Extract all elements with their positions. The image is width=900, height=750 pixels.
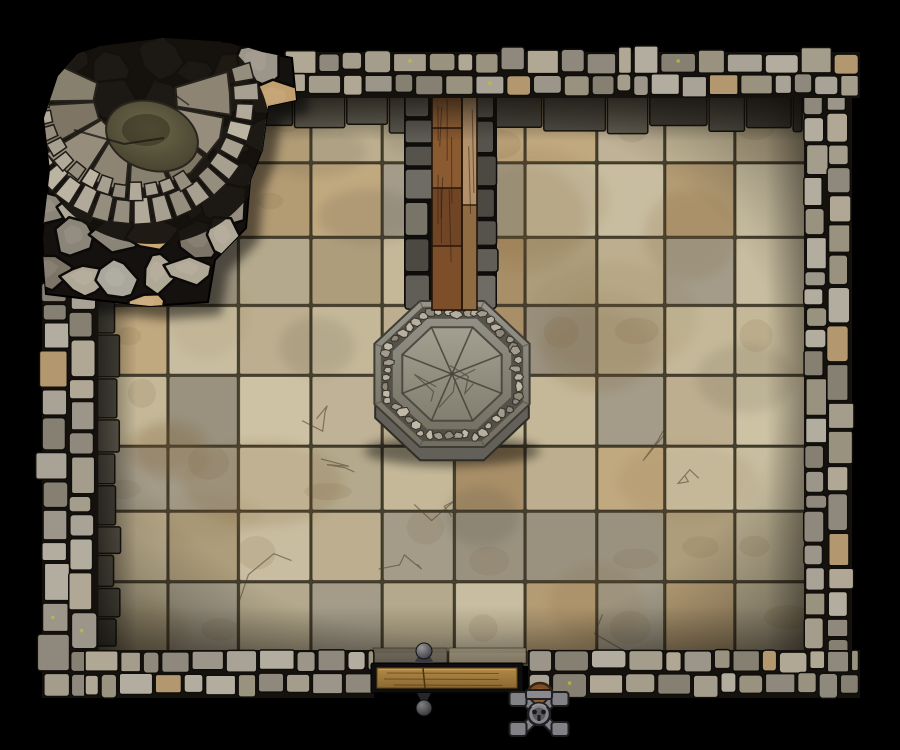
map-viewport [0, 0, 900, 750]
ball-finial-top [416, 643, 432, 659]
wall-right [804, 52, 854, 698]
wall-left [36, 282, 98, 698]
ball-finial-bottom [416, 700, 432, 716]
wall-bottom-left [84, 650, 374, 698]
dungeon-map [0, 0, 900, 750]
wall-bottom-right [528, 650, 860, 701]
wall-top [284, 46, 860, 98]
